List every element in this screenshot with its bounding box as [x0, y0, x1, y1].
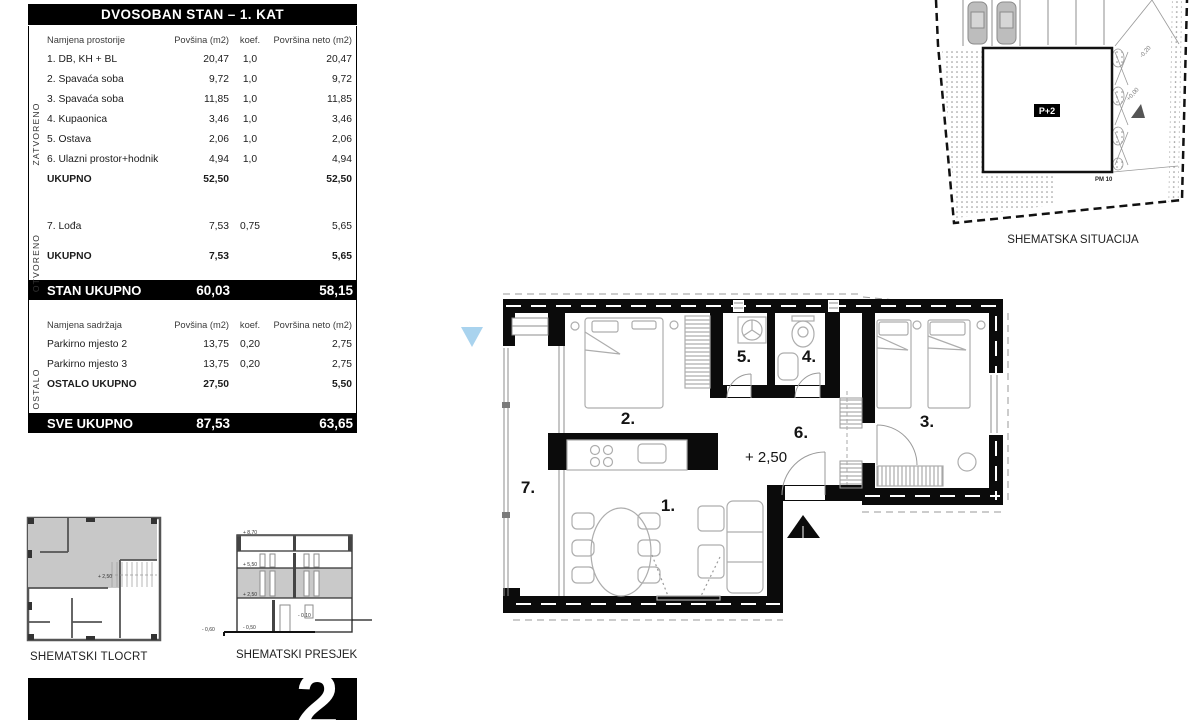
section-label-ostalo: OSTALO	[31, 349, 41, 429]
presjek-caption: SHEMATSKI PRESJEK	[236, 649, 358, 661]
table-header: Namjena prostorije Povšina (m2) koef. Po…	[29, 31, 356, 49]
level-f2: + 5,50	[243, 562, 257, 568]
table-row: 7. Lođa7,530,755,65	[29, 216, 356, 236]
schematic-section: + 8,70 + 5,50 + 2,50 - 0,50 - 0,10 - 0,6…	[200, 505, 375, 668]
apartment-title: DVOSOBAN STAN – 1. KAT	[28, 4, 357, 25]
room-label-4: 4.	[802, 347, 816, 366]
room-label-2: 2.	[621, 409, 635, 428]
plan-level-label: + 2,50	[745, 449, 787, 466]
table-row: 6. Ulazni prostor+hodnik4,941,04,94	[29, 149, 356, 169]
stan-total-bar: STAN UKUPNO60,0358,15	[28, 280, 357, 300]
site-level-minus: -0,20	[1139, 45, 1153, 60]
level-annex: - 0,10	[298, 613, 311, 619]
level-roof: + 8,70	[243, 530, 257, 536]
apartment-number-bar: 2	[28, 678, 357, 720]
table-row: 4. Kupaonica3,461,03,46	[29, 109, 356, 129]
blue-level-marker-icon	[461, 327, 483, 347]
site-level-zero: +0,00	[1126, 87, 1141, 103]
site-parking-label: PM 10	[1095, 177, 1113, 183]
level-ground: - 0,50	[243, 625, 256, 631]
room-label-7: 7.	[521, 478, 535, 497]
table-row: Parkirno mjesto 313,750,202,75	[29, 354, 356, 374]
site-plan: P+2 PM 10 -0,20 +0,00 SHEMATSKA SITUACIJ…	[930, 0, 1195, 250]
room-label-3: 3.	[920, 412, 934, 431]
site-parking	[963, 0, 1104, 46]
apartment-number: 2	[296, 678, 339, 720]
room-label-5: 5.	[737, 347, 751, 366]
site-driveway-lines	[1113, 0, 1179, 172]
schematic-plan: + 2,50 SHEMATSKI TLOCRT	[20, 510, 170, 668]
table-subtotal-row: OSTALO UKUPNO27,505,50	[29, 374, 356, 394]
table-row: Parkirno mjesto 213,750,202,75	[29, 334, 356, 354]
sve-total-bar: SVE UKUPNO87,5363,65	[28, 413, 357, 433]
table-row: 3. Spavaća soba11,851,011,85	[29, 89, 356, 109]
section-label-otvoreno: OTVORENO	[31, 223, 41, 303]
level-terrain: - 0,60	[202, 627, 215, 633]
floor-plan-sheet: DVOSOBAN STAN – 1. KAT ZATVORENO OTVOREN…	[0, 0, 1198, 720]
site-plan-caption: SHEMATSKA SITUACIJA	[1007, 234, 1139, 246]
area-table-panel: DVOSOBAN STAN – 1. KAT ZATVORENO OTVOREN…	[28, 4, 357, 433]
table-row: 1. DB, KH + BL20,471,020,47	[29, 49, 356, 69]
tlocrt-caption: SHEMATSKI TLOCRT	[30, 651, 148, 663]
room-label-1: 1.	[661, 496, 675, 515]
hallway-closet	[840, 391, 862, 488]
table-subtotal-row: UKUPNO52,5052,50	[29, 169, 356, 189]
table-row: 2. Spavaća soba9,721,09,72	[29, 69, 356, 89]
section-label-zatvoreno: ZATVORENO	[31, 94, 41, 174]
site-north-arrow-icon	[1131, 104, 1145, 118]
table-header-ostalo: Namjena sadržaja Povšina (m2) koef. Povr…	[29, 316, 356, 334]
room-label-6: 6.	[794, 423, 808, 442]
table-subtotal-row: UKUPNO7,535,65	[29, 246, 356, 266]
tlocrt-level-label: + 2,50	[98, 574, 112, 580]
site-building-label: P+2	[1039, 106, 1055, 116]
table-row: 5. Ostava2,061,02,06	[29, 129, 356, 149]
level-f1: + 2,50	[243, 592, 257, 598]
main-floor-plan: 2. 5. 4. 3. 6. 1. 7. + 2,50	[440, 290, 1060, 635]
area-table-frame: ZATVORENO OTVORENO OSTALO Namjena prosto…	[28, 26, 357, 433]
